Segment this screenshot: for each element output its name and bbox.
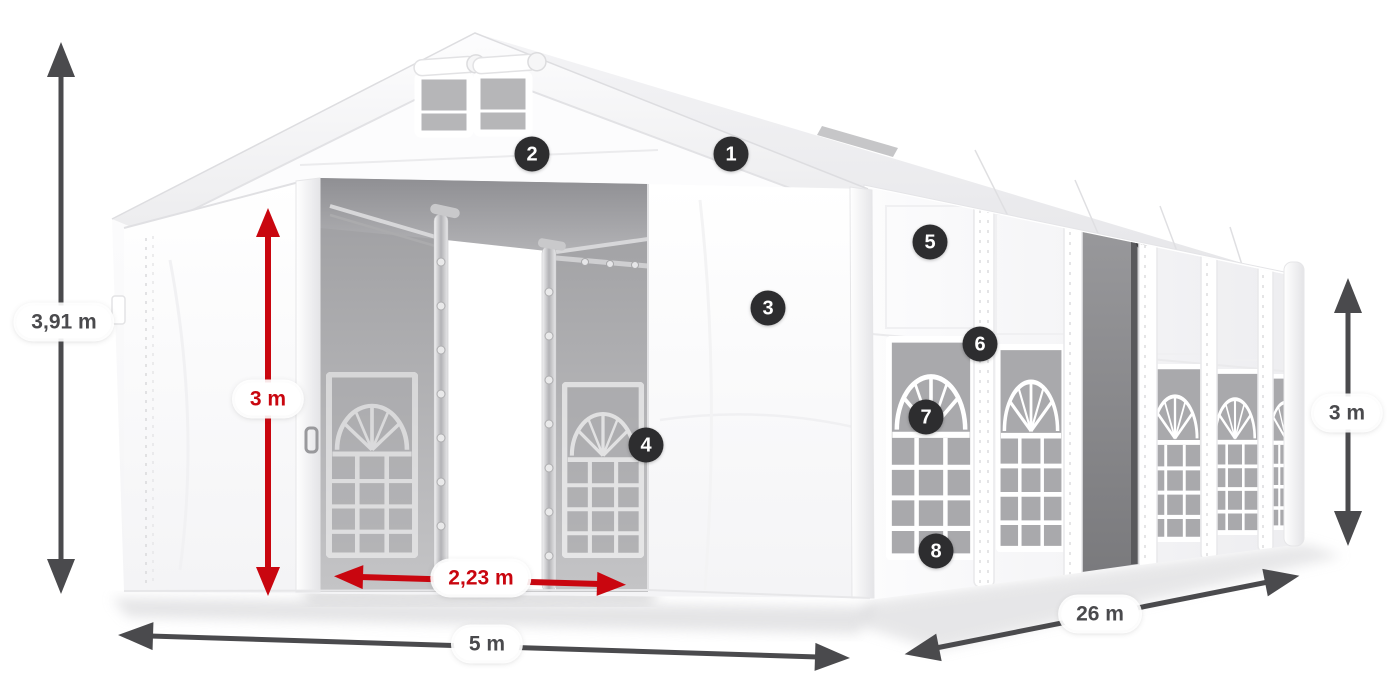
callout-3[interactable]: 3 xyxy=(751,291,786,326)
callout-5[interactable]: 5 xyxy=(913,225,948,260)
interior-back-window-left xyxy=(329,375,415,556)
callout-2[interactable]: 2 xyxy=(515,137,550,172)
callout-4[interactable]: 4 xyxy=(629,428,664,463)
side-window-4 xyxy=(1211,371,1260,532)
left-door-jamb xyxy=(296,178,320,592)
front-entrance-opening xyxy=(320,178,648,592)
side-length-label: 26 m xyxy=(1061,598,1139,631)
tent-illustration xyxy=(0,0,1400,700)
callout-6[interactable]: 6 xyxy=(963,327,998,362)
interior-back-window-right xyxy=(564,384,641,555)
front-corner-post xyxy=(850,187,874,598)
pass-through-gap xyxy=(446,240,556,590)
side-window-1 xyxy=(889,339,974,557)
callout-7[interactable]: 7 xyxy=(909,400,944,435)
side-wall-height-label: 3 m xyxy=(1314,397,1380,430)
entrance-width-label: 2,23 m xyxy=(433,562,528,595)
side-window-2 xyxy=(998,347,1064,549)
wall-strap-tab xyxy=(112,296,125,324)
callout-1[interactable]: 1 xyxy=(714,137,749,172)
front-right-panel xyxy=(648,184,874,598)
rear-corner-post xyxy=(1284,262,1304,546)
front-width-label: 5 m xyxy=(454,628,520,661)
overall-height-label: 3,91 m xyxy=(16,306,111,339)
diagram-canvas: 3,91 m 3 m 2,23 m 5 m 26 m 3 m 1 2 3 4 5… xyxy=(0,0,1400,700)
callout-8[interactable]: 8 xyxy=(919,534,954,569)
entrance-height-label: 3 m xyxy=(235,383,301,416)
